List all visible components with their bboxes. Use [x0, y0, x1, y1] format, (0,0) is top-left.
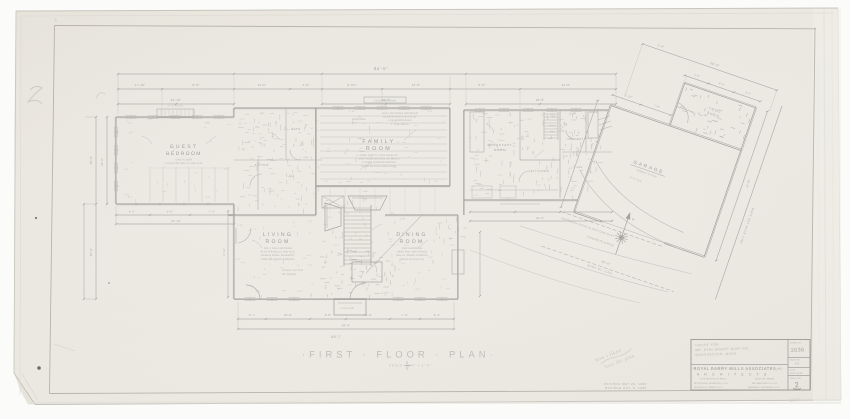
- svg-text:WALLS, WOOD CORNICE: WALLS, WOOD CORNICE: [396, 254, 428, 257]
- svg-text:4'-2″: 4'-2″: [242, 148, 247, 151]
- svg-text:INC.: INC.: [777, 368, 783, 371]
- svg-text:BOSTON, MASS.: BOSTON, MASS.: [755, 378, 775, 381]
- svg-text:10'-8″: 10'-8″: [364, 313, 372, 317]
- svg-text:7'-2″: 7'-2″: [209, 211, 215, 214]
- svg-text:2'-8″: 2'-8″: [434, 180, 439, 183]
- svg-text:2'-2″: 2'-2″: [450, 244, 455, 247]
- svg-text:1'-8″: 1'-8″: [588, 158, 593, 161]
- svg-text:24'-0″: 24'-0″: [562, 83, 571, 87]
- svg-text:RAISED PANEL WAINSCOT: RAISED PANEL WAINSCOT: [261, 254, 295, 257]
- svg-text:6'-8″: 6'-8″: [328, 216, 333, 219]
- svg-text:3'-8″: 3'-8″: [298, 120, 303, 123]
- svg-text:6'-7″: 6'-7″: [249, 313, 256, 317]
- svg-text:OF 10/6/60: OF 10/6/60: [282, 273, 296, 276]
- svg-text:ROOM: ROOM: [400, 239, 425, 245]
- svg-text:28'-0″: 28'-0″: [89, 156, 93, 165]
- svg-text:4'-4″: 4'-4″: [474, 194, 479, 197]
- svg-text:1″ OAK SHELF: 1″ OAK SHELF: [391, 123, 409, 126]
- svg-text:18'-0″: 18'-0″: [100, 158, 104, 166]
- svg-text:LAUNDRY: LAUNDRY: [568, 138, 583, 141]
- svg-text:7'-4″: 7'-4″: [536, 184, 541, 187]
- svg-text:6'-2″: 6'-2″: [496, 114, 501, 117]
- svg-text:2'-6″: 2'-6″: [568, 176, 573, 179]
- svg-text:5'-6″: 5'-6″: [256, 290, 261, 293]
- svg-text:7'-0″: 7'-0″: [388, 238, 393, 241]
- svg-text:OLIVIER IRON 12x12 FLUE: OLIVIER IRON 12x12 FLUE: [383, 116, 417, 119]
- svg-text:ROOM: ROOM: [266, 239, 291, 245]
- svg-text:7'-6″: 7'-6″: [402, 313, 409, 317]
- svg-text:5'-0″: 5'-0″: [428, 110, 433, 113]
- svg-text:BATH: BATH: [292, 128, 301, 131]
- svg-text:4'-0″: 4'-0″: [303, 83, 310, 87]
- svg-text:ROYAL BARRY WILLS ASSOCIATE: ROYAL BARRY WILLS ASSOCIATES,: [694, 366, 778, 371]
- svg-text:NO. 1 OAK FLOORING: NO. 1 OAK FLOORING: [264, 247, 292, 250]
- svg-text:RICHARD WILLS, A.I.A.: RICHARD WILLS, A.I.A.: [752, 382, 778, 385]
- svg-text:REVISED OCT. 6, 1960: REVISED OCT. 6, 1960: [605, 386, 647, 390]
- svg-text:17'-10″: 17'-10″: [135, 83, 146, 87]
- svg-text:PLASTER WALLS AND CLG.: PLASTER WALLS AND CLG.: [261, 251, 296, 254]
- svg-text:8'-8″: 8'-8″: [325, 313, 332, 317]
- svg-text:6'-0″: 6'-0″: [124, 168, 129, 171]
- svg-text:2'-4″: 2'-4″: [224, 168, 229, 171]
- svg-text:3'-4″: 3'-4″: [474, 118, 479, 121]
- svg-text:3'-8″: 3'-8″: [206, 196, 211, 199]
- svg-text:2036: 2036: [791, 347, 805, 354]
- svg-text:8 PLYMOUTH STREET: 8 PLYMOUTH STREET: [700, 378, 727, 381]
- svg-text:4'-0″: 4'-0″: [348, 284, 353, 287]
- svg-text:18'-8″: 18'-8″: [536, 98, 545, 102]
- svg-text:5'-8″: 5'-8″: [474, 158, 479, 161]
- svg-text:11'-6″: 11'-6″: [258, 83, 267, 87]
- svg-text:KITCHEN: KITCHEN: [531, 169, 550, 173]
- svg-text:8'-0½″: 8'-0½″: [347, 83, 357, 87]
- svg-text:·FIRST · FLOOR · PLAN·: ·FIRST · FLOOR · PLAN·: [302, 349, 497, 360]
- svg-text:4 PLASTER WALLS AND CLG.: 4 PLASTER WALLS AND CLG.: [165, 162, 203, 165]
- svg-text:10'-8″: 10'-8″: [284, 313, 292, 317]
- svg-text:4'-6″: 4'-6″: [528, 118, 533, 121]
- svg-text:7'-0″: 7'-0″: [248, 194, 253, 197]
- svg-text:ROYSTON D. MADDOCK, A.I.A.: ROYSTON D. MADDOCK, A.I.A.: [694, 382, 729, 385]
- svg-text:LOW BOOKCASES: LOW BOOKCASES: [388, 119, 411, 122]
- svg-text:ROOM: ROOM: [366, 146, 392, 152]
- svg-text:BREAKFAST: BREAKFAST: [488, 143, 513, 147]
- svg-text:84'-6″: 84'-6″: [374, 66, 388, 71]
- svg-text:23'-10″: 23'-10″: [171, 219, 181, 223]
- svg-text:38'-6″: 38'-6″: [342, 324, 351, 328]
- svg-text:2'-10″: 2'-10″: [349, 110, 355, 113]
- svg-text:3'-6″: 3'-6″: [428, 256, 433, 259]
- svg-text:6'-0″: 6'-0″: [416, 288, 421, 291]
- svg-text:3'-0″: 3'-0″: [438, 222, 443, 225]
- svg-text:68'-7: 68'-7: [331, 335, 340, 339]
- svg-text:PAINTED WOOD CORNICE: PAINTED WOOD CORNICE: [261, 258, 294, 261]
- svg-text:V-JOINT, RANDOM WIDTHS: V-JOINT, RANDOM WIDTHS: [362, 161, 396, 164]
- svg-text:17'-6″: 17'-6″: [223, 248, 226, 256]
- svg-text:4'-6″: 4'-6″: [129, 211, 135, 214]
- svg-text:WIDE PINE SHEATHING: WIDE PINE SHEATHING: [397, 251, 427, 254]
- svg-text:1'-10″: 1'-10″: [237, 224, 243, 227]
- svg-text:6'-1″: 6'-1″: [304, 156, 309, 159]
- svg-text:3'-2″: 3'-2″: [334, 244, 339, 247]
- svg-text:BEDROOM: BEDROOM: [166, 151, 202, 157]
- svg-text:3'-4″: 3'-4″: [324, 180, 329, 183]
- svg-text:2'-0″: 2'-0″: [552, 116, 557, 119]
- svg-text:9'-8″: 9'-8″: [167, 211, 173, 214]
- svg-text:6'-0″: 6'-0″: [193, 83, 200, 87]
- svg-text:JULY 15 60: JULY 15 60: [790, 372, 803, 375]
- svg-text:BUILT BETWEEN MOUNTAIN: BUILT BETWEEN MOUNTAIN: [382, 112, 418, 115]
- svg-text:TO SEE LETTER: TO SEE LETTER: [282, 269, 303, 272]
- svg-text:ROOM: ROOM: [494, 148, 507, 152]
- svg-text:3'-0″: 3'-0″: [128, 122, 133, 125]
- svg-text:20'-0″: 20'-0″: [89, 248, 93, 257]
- svg-text:2'-6″: 2'-6″: [240, 118, 245, 121]
- svg-text:WIDE KNOTTY PINE SHIPLAP: WIDE KNOTTY PINE SHIPLAP: [360, 154, 397, 157]
- svg-text:WARREN J. RHOADES, A.I.A.: WARREN J. RHOADES, A.I.A.: [748, 386, 781, 389]
- svg-text:9'-0″: 9'-0″: [479, 83, 486, 87]
- svg-text:AND PLASTER CLG.: AND PLASTER CLG.: [399, 258, 424, 261]
- svg-text:LAV.: LAV.: [577, 166, 584, 169]
- svg-text:4'-8″: 4'-8″: [376, 260, 381, 263]
- svg-text:3'-6″: 3'-6″: [296, 198, 301, 201]
- svg-text:24'-6″: 24'-6″: [536, 216, 544, 220]
- svg-text:23'-10″: 23'-10″: [171, 98, 182, 102]
- svg-text:3'-0″: 3'-0″: [498, 174, 503, 177]
- svg-text:FAMILY: FAMILY: [362, 139, 395, 145]
- svg-text:2'-0″: 2'-0″: [308, 264, 313, 267]
- svg-text:2'-8″: 2'-8″: [308, 220, 313, 223]
- svg-text:CL.: CL.: [256, 126, 261, 129]
- svg-text:8'-2″: 8'-2″: [298, 290, 303, 293]
- svg-text:FLAGSTONE: FLAGSTONE: [340, 307, 355, 310]
- svg-text:13'-6″: 13'-6″: [412, 83, 421, 87]
- svg-text:8'-1″: 8'-1″: [434, 313, 441, 317]
- svg-text:COMM. NO.: COMM. NO.: [790, 341, 802, 344]
- svg-text:ELECTRIC OVEN: ELECTRIC OVEN: [374, 100, 396, 103]
- svg-text:4'-6″: 4'-6″: [236, 258, 241, 261]
- svg-text:WOOD BOX: WOOD BOX: [352, 118, 366, 121]
- svg-text:A-2: A-2: [795, 361, 800, 365]
- svg-text:A R C H I T E C T S: A R C H I T E C T S: [697, 372, 769, 376]
- svg-text:CHARLES S. MINOT, A.I.A.: CHARLES S. MINOT, A.I.A.: [694, 386, 724, 389]
- svg-text:2'-4″: 2'-4″: [442, 278, 447, 281]
